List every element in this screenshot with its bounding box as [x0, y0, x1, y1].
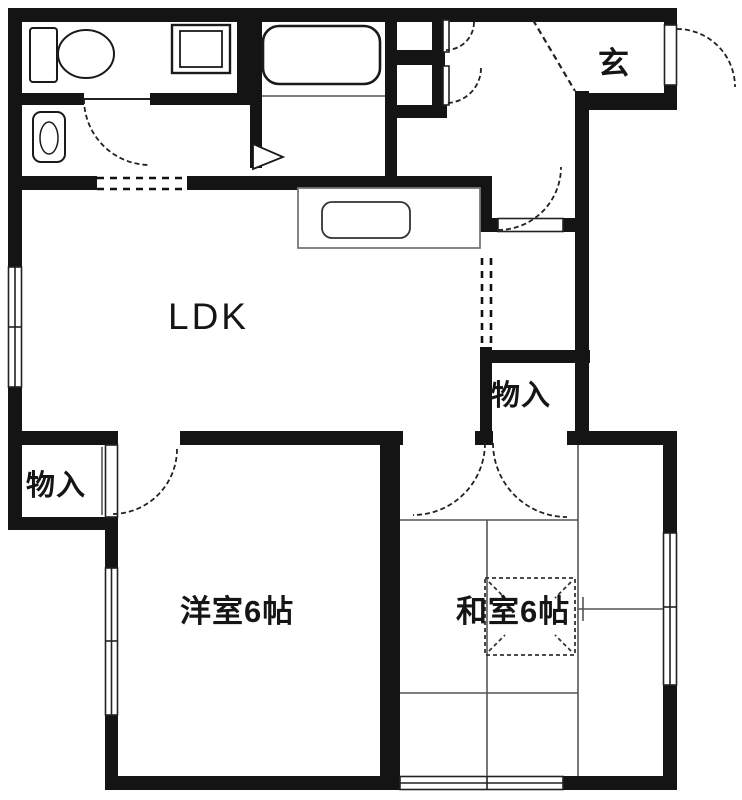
closet-door-arc [493, 443, 567, 517]
hall-door-leaf [498, 219, 563, 232]
label-ldk: LDK [168, 296, 249, 338]
wall-entrance-jamb-top [664, 22, 677, 28]
wall-ldk-north-b [187, 176, 480, 190]
utility-door-arc-1 [446, 22, 474, 50]
window-tatami-south [400, 776, 563, 790]
genkan-step-line [533, 20, 575, 91]
wall-storage-west-south [8, 517, 118, 530]
wall-hall-door-a [480, 218, 498, 232]
toilet-door-arc [84, 99, 150, 165]
wall-right-upper [663, 445, 677, 535]
wall-ldk-north-a [22, 176, 97, 190]
wall-ldk-south-b [180, 431, 403, 445]
label-storage-west: 物入 [26, 462, 86, 504]
entrance-door-arc [677, 29, 735, 87]
plan-symbols [0, 0, 742, 800]
wall-ldk-south-post [475, 431, 493, 445]
wall-toilet-south-a [8, 93, 84, 105]
washing-machine-icon [172, 25, 230, 73]
wall-left [8, 8, 22, 530]
bathtub-icon [263, 26, 380, 84]
kitchen-counter [298, 188, 480, 248]
kitchen-sink-icon [322, 202, 410, 238]
washbasin-icon [33, 112, 65, 162]
wall-ldk-south-a [8, 431, 118, 445]
wall-bath-west [250, 22, 262, 168]
wall-utility-post-a [432, 22, 445, 50]
wall-toilet-east [237, 22, 250, 95]
wall-hall-door-b [563, 218, 575, 232]
window-western-room-west [105, 568, 118, 715]
wall-bath-east [385, 8, 397, 180]
wall-utility-south [397, 105, 447, 118]
wall-bottom-west [105, 776, 402, 790]
floor-plan: LDK 玄 物入 物入 洋室6帖 和室6帖 [0, 0, 742, 800]
hall-door-arc [498, 167, 561, 230]
wall-room-divider [380, 431, 400, 790]
western-room-door-arc [112, 449, 177, 514]
toilet-bowl-icon [58, 30, 114, 78]
wall-right-lower [663, 685, 677, 790]
toilet-tank-icon [30, 28, 57, 82]
wall-utility-divider [397, 50, 445, 65]
wall-storage-hall-north [480, 350, 590, 363]
window-east [663, 533, 677, 685]
label-entrance: 玄 [598, 38, 630, 83]
label-japanese-room: 和室6帖 [456, 586, 570, 631]
wall-utility-post-b [432, 65, 445, 105]
label-western-room: 洋室6帖 [180, 586, 294, 631]
western-room-door-leaf [106, 445, 118, 517]
wall-tatami-northeast [575, 431, 677, 445]
wall-genkan-south [587, 93, 677, 110]
wall-corridor-east [575, 91, 589, 445]
wall-toilet-south-b [150, 93, 250, 105]
wall-top [8, 8, 677, 22]
label-storage-hall: 物入 [491, 372, 551, 414]
wall-ldk-south-c [567, 431, 589, 445]
wall-westroom-left-c [105, 713, 118, 790]
entrance-door-leaf [665, 25, 677, 85]
tatami-room-door-arc [413, 443, 485, 515]
wall-bottom-east [563, 776, 677, 790]
utility-door-arc-2 [446, 68, 481, 103]
